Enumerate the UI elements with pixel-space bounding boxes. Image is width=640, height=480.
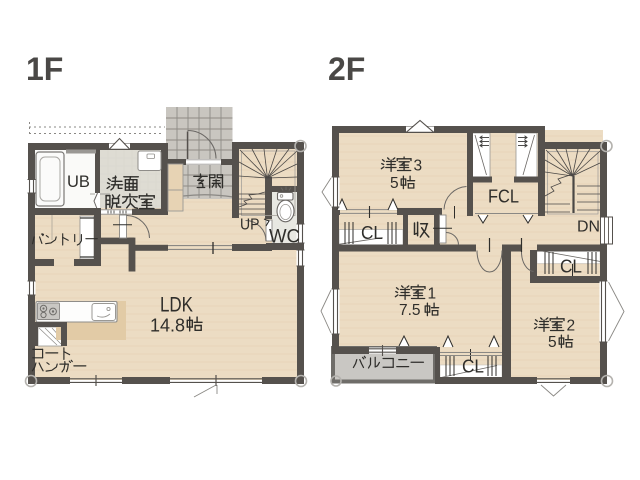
svg-text:7.5: 7.5 [399,302,421,319]
svg-text:CL: CL [560,257,582,277]
svg-text:WC: WC [269,227,300,248]
svg-text:14.8: 14.8 [150,316,185,336]
svg-text:DN: DN [577,219,600,236]
svg-text:UP: UP [240,217,260,234]
svg-text:1F: 1F [26,51,63,87]
svg-text:2: 2 [567,318,576,335]
svg-text:5: 5 [390,175,399,192]
svg-text:5: 5 [548,334,557,351]
svg-text:LDK: LDK [160,293,194,317]
svg-text:CL: CL [361,222,383,243]
svg-text:UB: UB [67,173,90,191]
svg-text:CL: CL [462,357,484,377]
svg-text:3: 3 [414,158,423,175]
svg-text:FCL: FCL [488,187,519,207]
svg-text:2F: 2F [328,51,365,87]
svg-text:1: 1 [428,286,437,303]
